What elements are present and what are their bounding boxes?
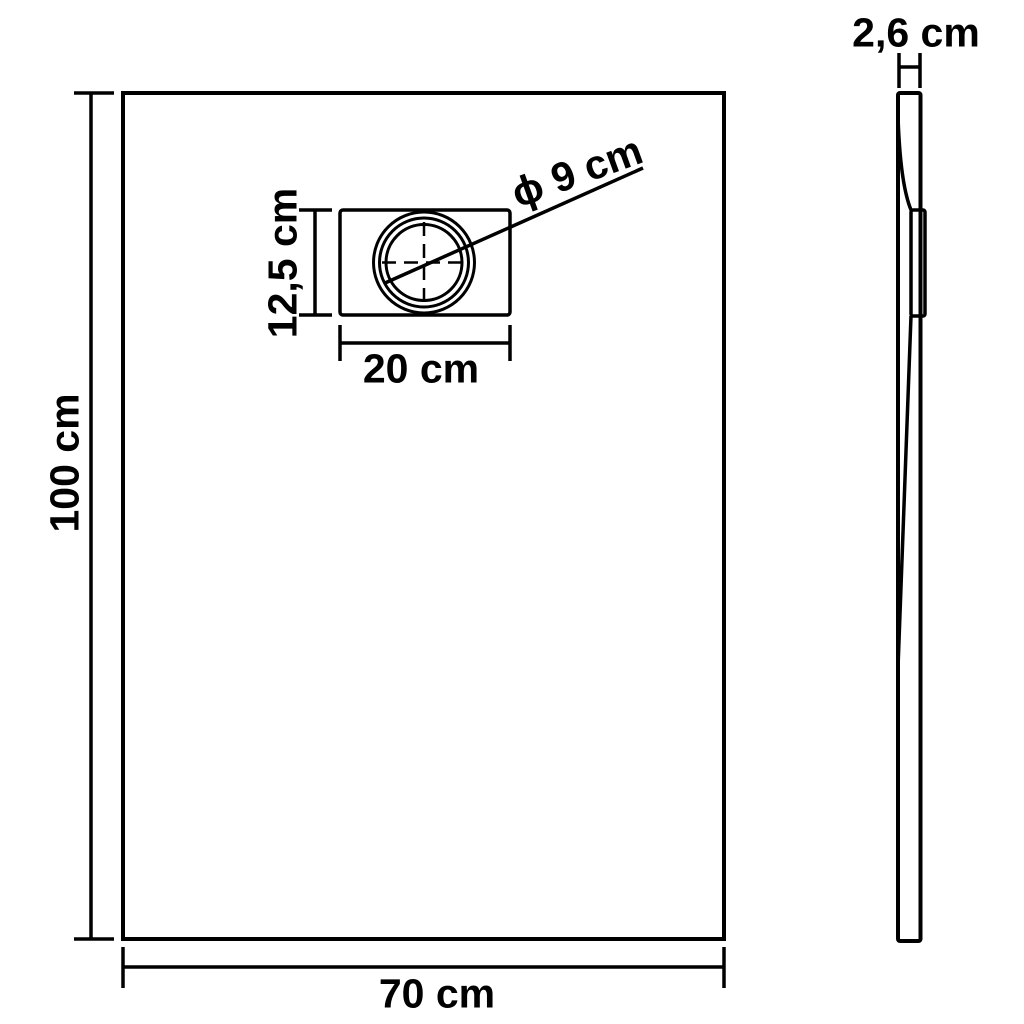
front-view [123,93,724,939]
front-view-outline [123,93,724,939]
drain-height-dimension-label: 12,5 cm [263,188,304,338]
drain-width-dimension-label: 20 cm [363,349,479,390]
drawing-linework [0,0,1024,1024]
drain-assembly [340,168,643,315]
height-dimension-label: 100 cm [45,393,86,532]
thickness-dimension [899,53,920,88]
side-view [898,93,925,941]
side-view-drain-box [911,210,925,316]
thickness-dimension-label: 2,6 cm [852,13,980,54]
technical-drawing-page: 100 cm 70 cm 12,5 cm 20 cm ϕ 9 cm 2,6 cm [0,0,1024,1024]
width-dimension-label: 70 cm [379,974,495,1015]
